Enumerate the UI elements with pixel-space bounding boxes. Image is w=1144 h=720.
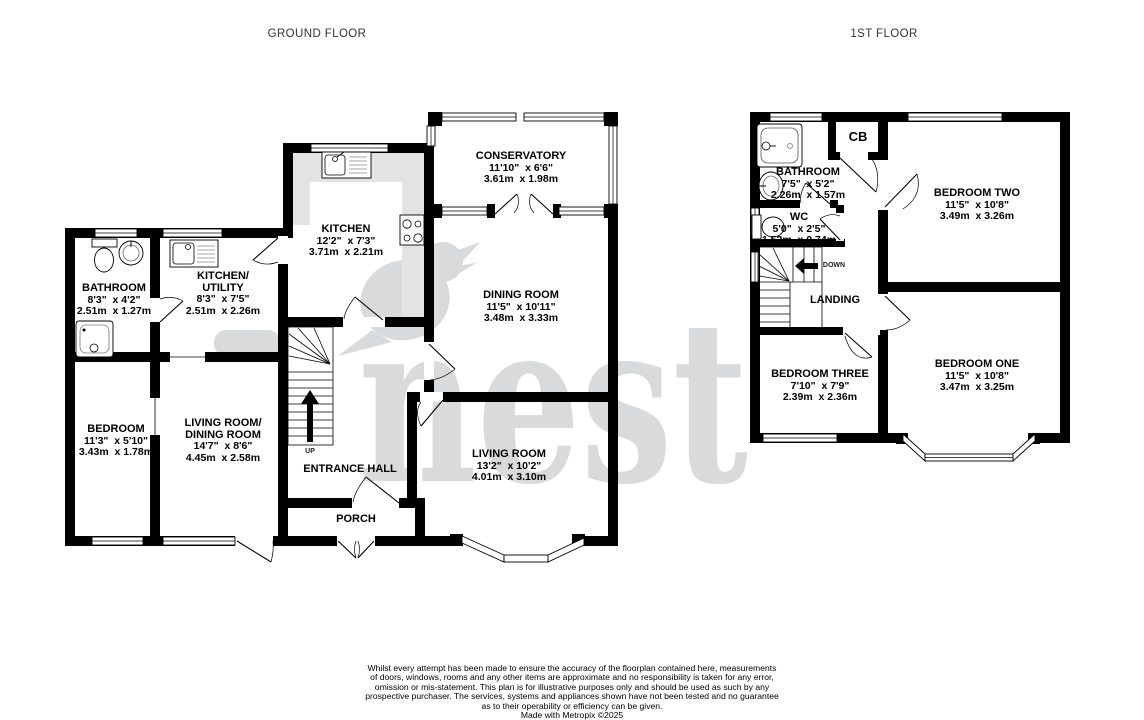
room-label-living-dining: LIVING ROOM/ DINING ROOM 14'7" x 8'6" 4.… <box>185 418 262 464</box>
room-label-bedroom-two: BEDROOM TWO 11'5" x 10'8" 3.49m x 3.26m <box>934 188 1020 223</box>
room-label-kitchen: KITCHEN 12'2" x 7'3" 3.71m x 2.21m <box>309 224 383 259</box>
room-label-bedroom-one: BEDROOM ONE 11'5" x 10'8" 3.47m x 3.25m <box>935 359 1019 394</box>
disclaimer: Whilst every attempt has been made to en… <box>365 664 779 720</box>
room-label-kitchen-utility: KITCHEN/ UTILITY 8'3" x 7'5" 2.51m x 2.2… <box>186 271 260 317</box>
room-label-gf-bedroom: BEDROOM 11'3" x 5'10" 3.43m x 1.78m <box>79 424 153 459</box>
watermark: nest <box>214 242 748 535</box>
room-label-landing: LANDING <box>810 295 860 307</box>
room-label-conservatory: CONSERVATORY 11'10" x 6'6" 3.61m x 1.98m <box>476 151 566 186</box>
hob-icon <box>400 215 424 245</box>
gf-basin-icon <box>119 241 143 265</box>
first-floor-plan <box>750 112 1070 461</box>
disclaimer-line: Made with Metropix ©2025 <box>365 711 779 720</box>
bathtub-icon <box>757 124 802 167</box>
room-label-entrance-hall: ENTRANCE HALL <box>303 464 397 476</box>
stairs-up-label: UP <box>305 448 315 455</box>
room-label-living-room: LIVING ROOM 13'2" x 10'2" 4.01m x 3.10m <box>472 449 546 484</box>
gf-toilet-icon <box>92 239 117 272</box>
room-label-porch: PORCH <box>336 514 376 526</box>
kitchen-sink-icon <box>322 152 371 178</box>
room-label-cupboard: CB <box>849 131 868 143</box>
utility-sink-icon <box>170 240 218 267</box>
room-label-gf-bathroom: BATHROOM 8'3" x 4'2" 2.51m x 1.27m <box>77 283 151 318</box>
gf-shower-icon <box>76 321 113 357</box>
room-label-dining-room: DINING ROOM 11'5" x 10'11" 3.48m x 3.33m <box>483 290 559 325</box>
down-arrow-icon <box>795 258 818 274</box>
room-label-wc: WC 5'0" x 2'5" 1.52m x 0.74m <box>762 212 836 247</box>
first-floor-title: 1ST FLOOR <box>850 28 917 40</box>
stairs-down-label: DOWN <box>823 262 845 269</box>
room-label-bedroom-three: BEDROOM THREE 7'10" x 7'9" 2.39m x 2.36m <box>771 369 869 404</box>
up-arrow-icon <box>301 390 319 442</box>
floorplan-canvas: nest <box>0 0 1144 720</box>
ground-floor-title: GROUND FLOOR <box>268 28 367 40</box>
room-label-ff-bathroom: BATHROOM 7'5" x 5'2" 2.26m x 1.57m <box>771 167 845 202</box>
first-floor-stairs <box>758 247 822 330</box>
